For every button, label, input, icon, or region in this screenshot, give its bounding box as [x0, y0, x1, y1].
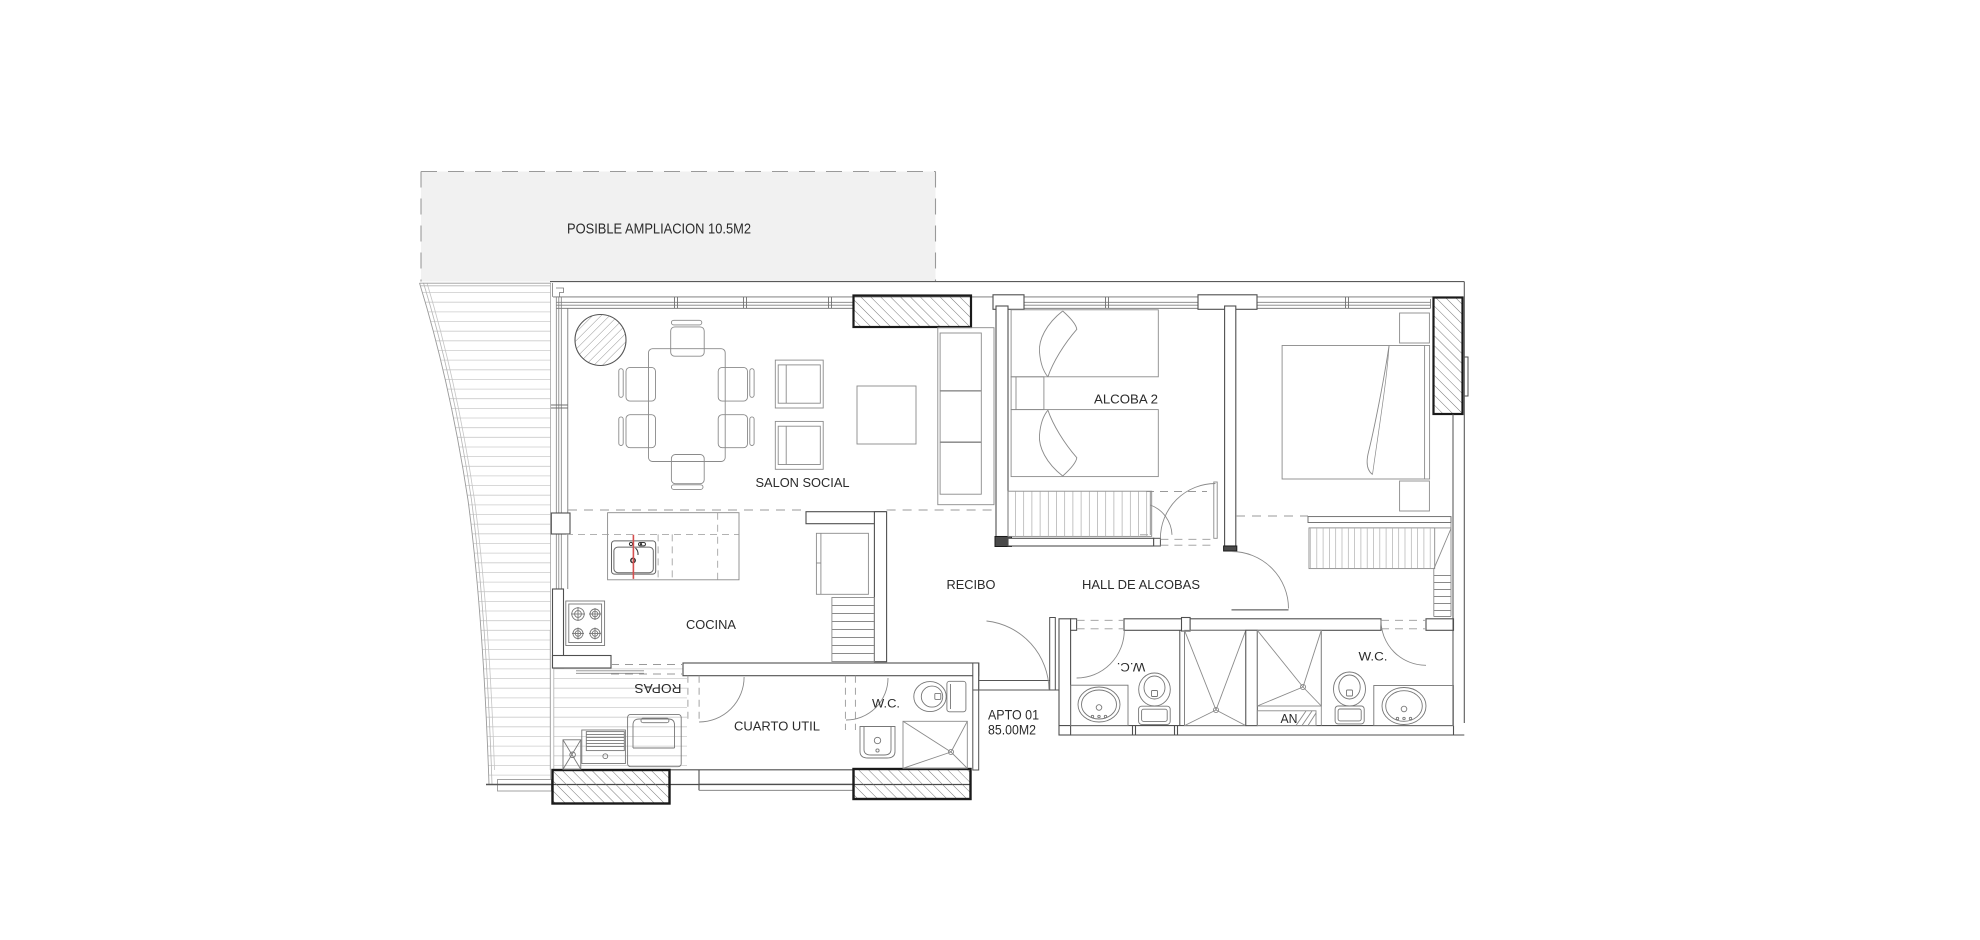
svg-text:ALCOBA 2: ALCOBA 2 — [1094, 392, 1158, 407]
svg-text:W.C.: W.C. — [1359, 650, 1388, 664]
svg-text:APTO 01: APTO 01 — [988, 708, 1039, 723]
svg-text:POSIBLE AMPLIACION 10.5M2: POSIBLE AMPLIACION 10.5M2 — [567, 222, 751, 238]
svg-text:AN: AN — [1281, 712, 1298, 726]
svg-text:COCINA: COCINA — [686, 617, 736, 632]
svg-text:W.C.: W.C. — [1117, 660, 1146, 674]
svg-text:85.00M2: 85.00M2 — [988, 723, 1036, 738]
svg-text:CUARTO UTIL: CUARTO UTIL — [734, 719, 820, 734]
svg-text:W.C.: W.C. — [872, 697, 900, 711]
svg-text:SALON SOCIAL: SALON SOCIAL — [756, 475, 850, 490]
svg-text:ROPAS: ROPAS — [635, 681, 682, 696]
svg-text:HALL DE ALCOBAS: HALL DE ALCOBAS — [1082, 577, 1200, 592]
svg-text:RECIBO: RECIBO — [947, 577, 996, 592]
